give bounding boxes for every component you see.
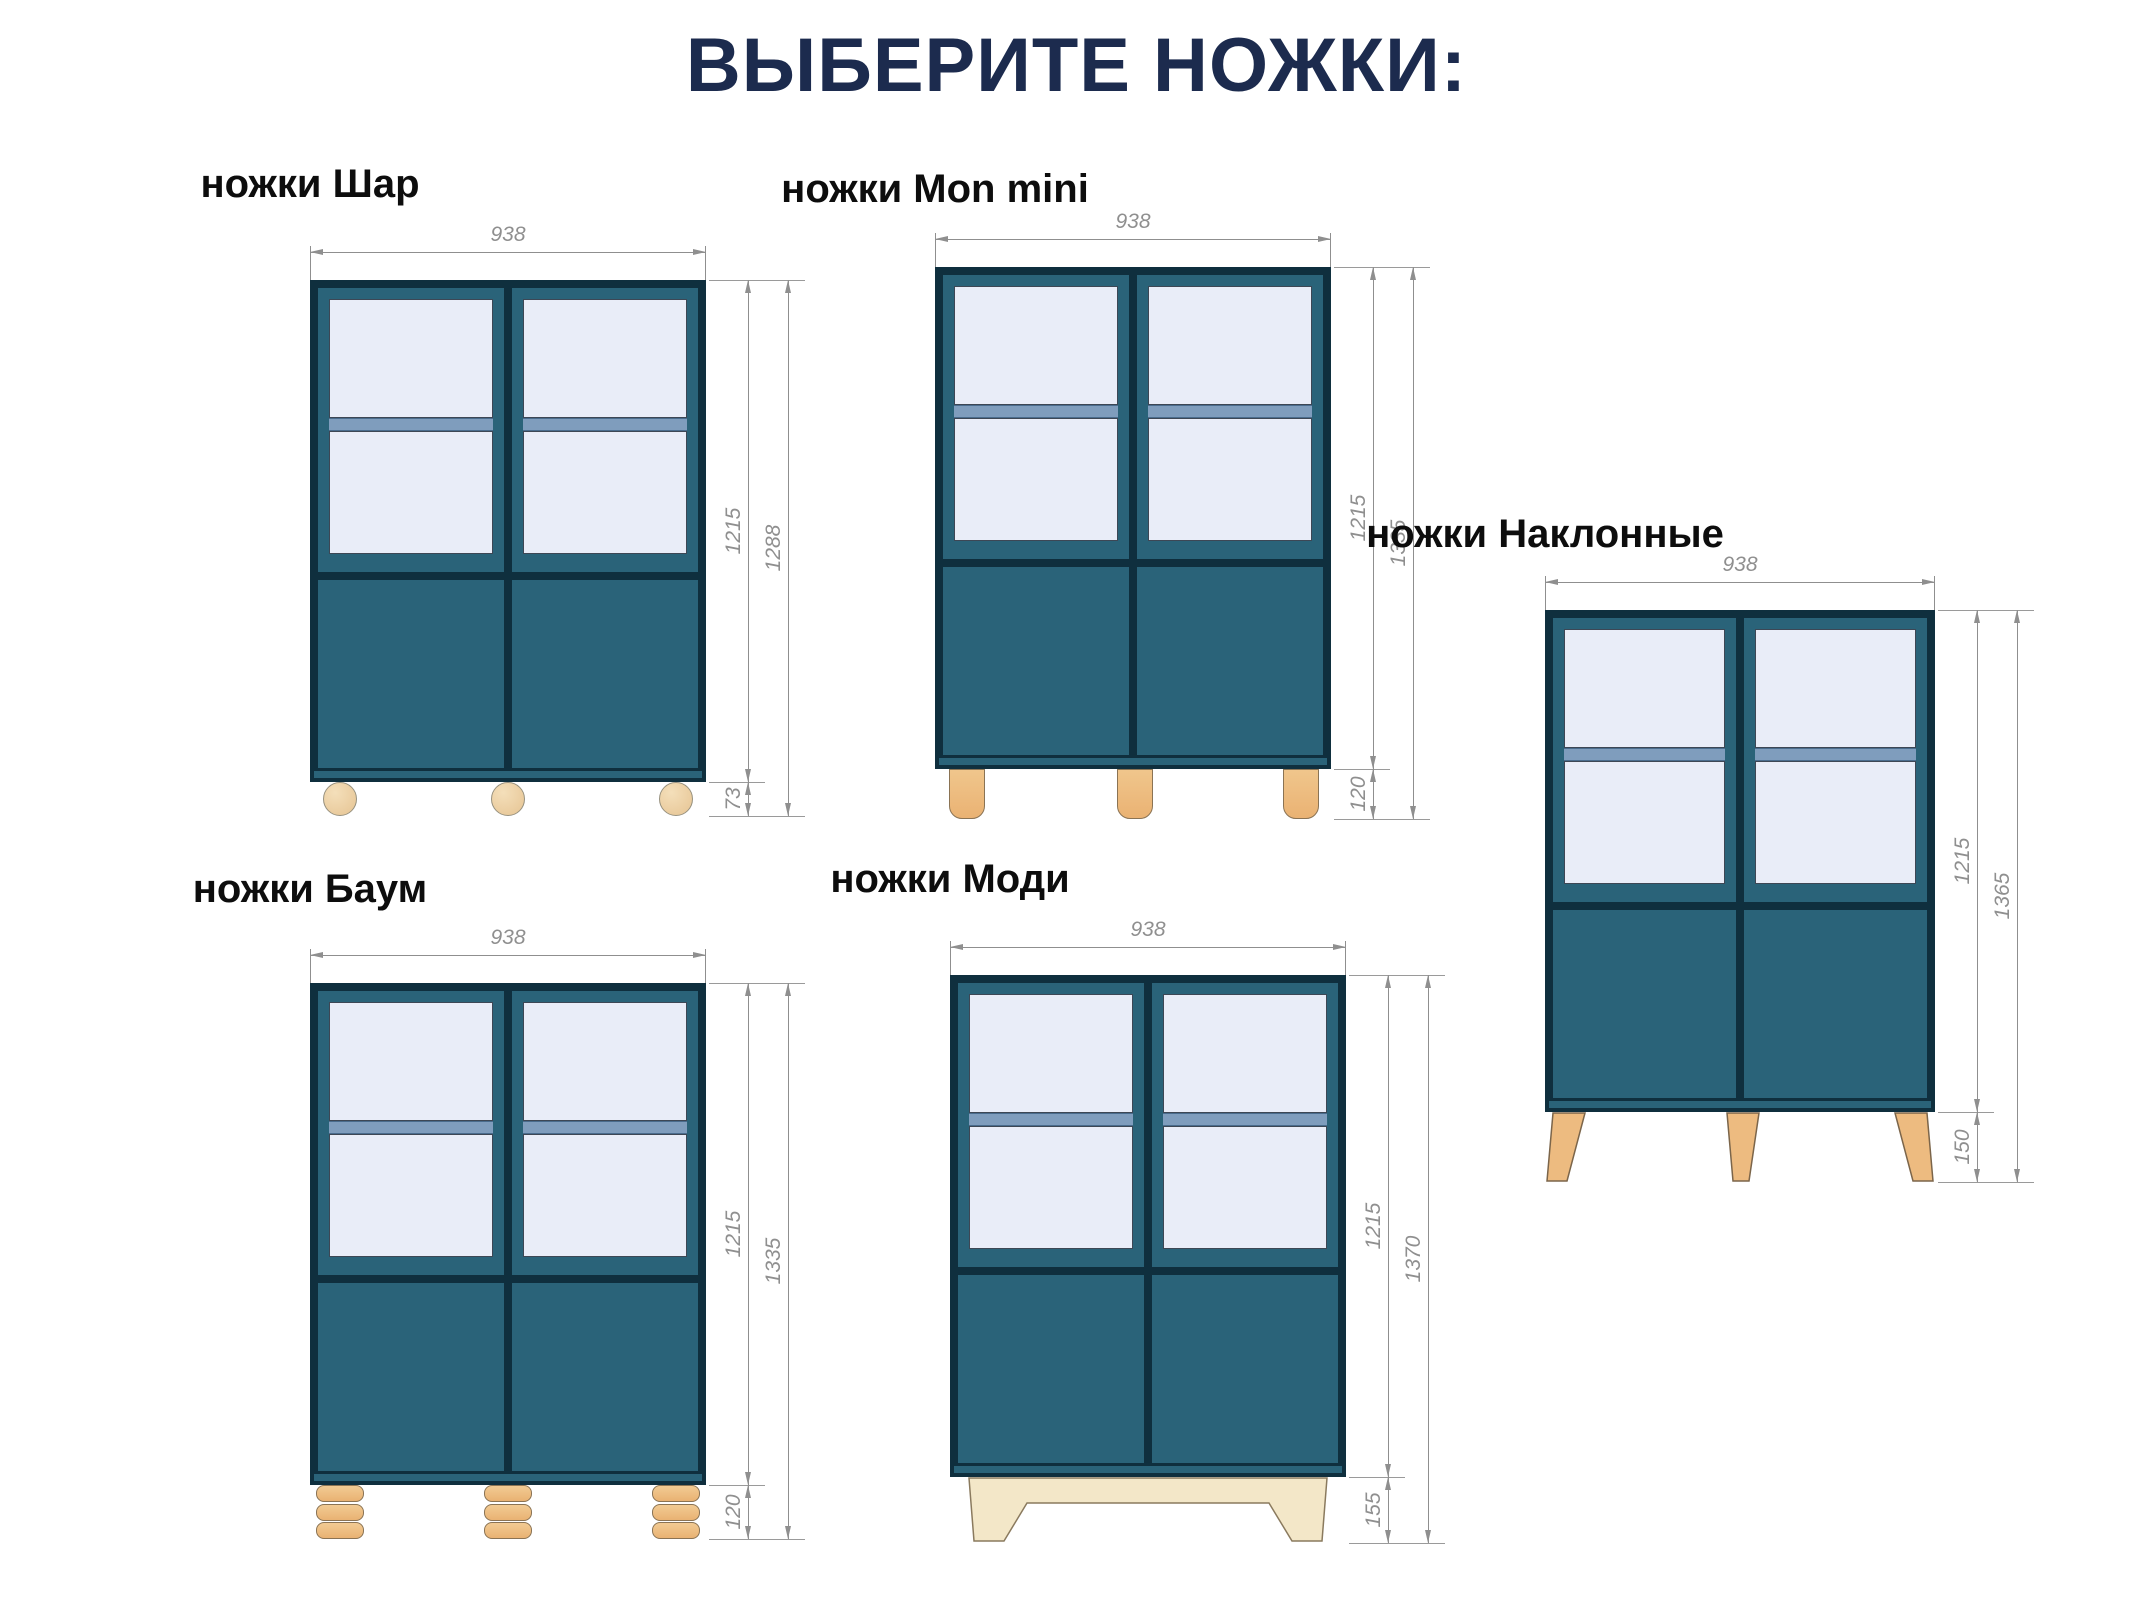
glass-door-right: [1150, 981, 1340, 1269]
cylinder-leg-icon: [1117, 769, 1153, 819]
leg-height-value: 155: [1362, 1492, 1386, 1527]
glass-pane-bottom: [329, 1134, 493, 1257]
extension-line: [1545, 576, 1546, 610]
legs-selection-diagram: ВЫБЕРИТЕ НОЖКИ: ножки Шар 938: [0, 0, 2153, 1600]
leg-height-dimension: 150: [1977, 1112, 1978, 1182]
solid-door-right: [1135, 565, 1325, 757]
cabinet-base-band: [954, 1466, 1342, 1473]
disc: [652, 1485, 700, 1502]
glass-pane-top: [969, 994, 1133, 1113]
extension-line: [1349, 1477, 1405, 1478]
shelf-line: [329, 418, 493, 431]
glass-panel: [954, 286, 1118, 541]
cabinet-body: [1545, 610, 1935, 1112]
body-height-value: 1215: [722, 1211, 746, 1258]
total-height-dimension: 1370: [1428, 975, 1429, 1543]
extension-line: [1330, 233, 1331, 267]
cabinet-naklonnye-title: ножки Наклонные: [1366, 512, 1724, 557]
glass-panel: [1163, 994, 1327, 1249]
glass-pane-bottom: [969, 1126, 1133, 1249]
width-dimension-line: 938: [310, 955, 706, 956]
glass-pane-top: [1755, 629, 1916, 748]
width-dimension-value: 938: [1722, 553, 1757, 577]
shelf-line: [1564, 748, 1725, 761]
glass-panel: [523, 299, 687, 554]
disc: [316, 1485, 364, 1502]
extension-line: [950, 941, 951, 975]
glass-pane-bottom: [954, 418, 1118, 541]
width-dimension-line: 938: [935, 239, 1331, 240]
leg-height-dimension: 120: [1373, 769, 1374, 819]
extension-line: [1938, 1112, 1994, 1113]
extension-line: [709, 1485, 765, 1486]
cabinet-modi-title: ножки Моди: [830, 857, 1069, 902]
cabinet-shar-title: ножки Шар: [200, 162, 419, 207]
body-height-dimension: 1215: [748, 983, 749, 1485]
total-height-dimension: 1288: [788, 280, 789, 816]
page-title: ВЫБЕРИТЕ НОЖКИ:: [0, 22, 2153, 109]
plinth-base: [950, 1477, 1346, 1543]
total-height-value: 1335: [762, 1238, 786, 1285]
slanted-legs: [1545, 1112, 1935, 1182]
solid-door-left: [1551, 908, 1738, 1100]
solid-door-left: [316, 578, 506, 770]
ball-legs: [310, 782, 706, 816]
glass-panel: [329, 1002, 493, 1257]
leg-height-dimension: 120: [748, 1485, 749, 1539]
glass-pane-bottom: [1163, 1126, 1327, 1249]
stacked-disc-legs: [310, 1485, 706, 1539]
leg-height-dimension: 155: [1388, 1477, 1389, 1543]
extension-line: [709, 1539, 805, 1540]
solid-door-left: [316, 1281, 506, 1473]
body-height-dimension: 1215: [748, 280, 749, 782]
glass-pane-top: [523, 1002, 687, 1121]
glass-panel: [1148, 286, 1312, 541]
cabinet-baum-title: ножки Баум: [193, 867, 427, 912]
cabinet-body: [310, 983, 706, 1485]
solid-door-right: [1742, 908, 1929, 1100]
stacked-disc-leg-icon: [316, 1485, 364, 1539]
glass-door-right: [510, 286, 700, 574]
width-dimension-value: 938: [1130, 918, 1165, 942]
glass-pane-bottom: [523, 1134, 687, 1257]
body-height-value: 1215: [1951, 838, 1975, 885]
disc: [484, 1485, 532, 1502]
total-height-value: 1365: [1991, 873, 2015, 920]
disc: [316, 1522, 364, 1539]
disc: [484, 1504, 532, 1521]
leg-height-value: 150: [1951, 1129, 1975, 1164]
extension-line: [1934, 576, 1935, 610]
body-height-value: 1215: [722, 508, 746, 555]
glass-panel: [523, 1002, 687, 1257]
cabinet-base-band: [1549, 1101, 1931, 1108]
glass-door-left: [316, 989, 506, 1277]
cabinet-body: [935, 267, 1331, 769]
solid-door-right: [1150, 1273, 1340, 1465]
solid-door-right: [510, 578, 700, 770]
ball-leg-icon: [659, 782, 693, 816]
extension-line: [935, 233, 936, 267]
cabinet-body: [310, 280, 706, 782]
slanted-legs-icon: [1545, 1112, 1935, 1182]
solid-door-left: [941, 565, 1131, 757]
shelf-line: [523, 1121, 687, 1134]
glass-door-right: [510, 989, 700, 1277]
glass-door-left: [1551, 616, 1738, 904]
shelf-line: [329, 1121, 493, 1134]
leg-height-value: 73: [722, 787, 746, 810]
glass-pane-top: [523, 299, 687, 418]
shelf-line: [1755, 748, 1916, 761]
glass-panel: [1755, 629, 1916, 884]
stacked-disc-leg-icon: [484, 1485, 532, 1539]
glass-door-right: [1742, 616, 1929, 904]
stacked-disc-leg-icon: [652, 1485, 700, 1539]
shelf-line: [523, 418, 687, 431]
width-dimension-line: 938: [950, 947, 1346, 948]
glass-pane-bottom: [329, 431, 493, 554]
cabinet-base-band: [939, 758, 1327, 765]
glass-door-right: [1135, 273, 1325, 561]
leg-height-value: 120: [1347, 776, 1371, 811]
body-height-dimension: 1215: [1388, 975, 1389, 1477]
disc: [316, 1504, 364, 1521]
glass-pane-bottom: [1148, 418, 1312, 541]
glass-panel: [329, 299, 493, 554]
extension-line: [705, 949, 706, 983]
cabinet-base-band: [314, 771, 702, 778]
extension-line: [1334, 819, 1430, 820]
extension-line: [709, 782, 765, 783]
width-dimension-value: 938: [1115, 210, 1150, 234]
total-height-dimension: 1335: [788, 983, 789, 1539]
plinth-base-icon: [966, 1477, 1330, 1543]
ball-leg-icon: [323, 782, 357, 816]
shelf-line: [954, 405, 1118, 418]
total-height-value: 1370: [1402, 1236, 1426, 1283]
cylinder-legs: [935, 769, 1331, 819]
glass-pane-top: [1163, 994, 1327, 1113]
total-height-dimension: 1365: [2017, 610, 2018, 1182]
width-dimension-line: 938: [310, 252, 706, 253]
glass-pane-top: [1148, 286, 1312, 405]
glass-pane-top: [954, 286, 1118, 405]
width-dimension-value: 938: [490, 926, 525, 950]
glass-door-left: [956, 981, 1146, 1269]
extension-line: [1334, 769, 1390, 770]
total-height-value: 1288: [762, 525, 786, 572]
extension-line: [310, 949, 311, 983]
extension-line: [1349, 1543, 1445, 1544]
cabinet-body: [950, 975, 1346, 1477]
glass-pane-top: [1564, 629, 1725, 748]
extension-line: [705, 246, 706, 280]
extension-line: [709, 816, 805, 817]
extension-line: [310, 246, 311, 280]
glass-panel: [1564, 629, 1725, 884]
disc: [652, 1504, 700, 1521]
cabinet-base-band: [314, 1474, 702, 1481]
body-height-value: 1215: [1362, 1203, 1386, 1250]
glass-pane-bottom: [523, 431, 687, 554]
cylinder-leg-icon: [949, 769, 985, 819]
extension-line: [1938, 1182, 2034, 1183]
extension-line: [1345, 941, 1346, 975]
disc: [652, 1522, 700, 1539]
ball-leg-icon: [491, 782, 525, 816]
width-dimension-value: 938: [490, 223, 525, 247]
glass-door-left: [316, 286, 506, 574]
shelf-line: [969, 1113, 1133, 1126]
shelf-line: [1163, 1113, 1327, 1126]
disc: [484, 1522, 532, 1539]
width-dimension-line: 938: [1545, 582, 1935, 583]
body-height-dimension: 1215: [1977, 610, 1978, 1112]
glass-door-left: [941, 273, 1131, 561]
glass-pane-bottom: [1564, 761, 1725, 884]
glass-pane-top: [329, 1002, 493, 1121]
glass-pane-top: [329, 299, 493, 418]
cylinder-leg-icon: [1283, 769, 1319, 819]
leg-height-value: 120: [722, 1494, 746, 1529]
cabinet-mon-mini-title: ножки Mon mini: [781, 167, 1089, 212]
solid-door-right: [510, 1281, 700, 1473]
shelf-line: [1148, 405, 1312, 418]
solid-door-left: [956, 1273, 1146, 1465]
leg-height-dimension: 73: [748, 782, 749, 816]
glass-panel: [969, 994, 1133, 1249]
glass-pane-bottom: [1755, 761, 1916, 884]
